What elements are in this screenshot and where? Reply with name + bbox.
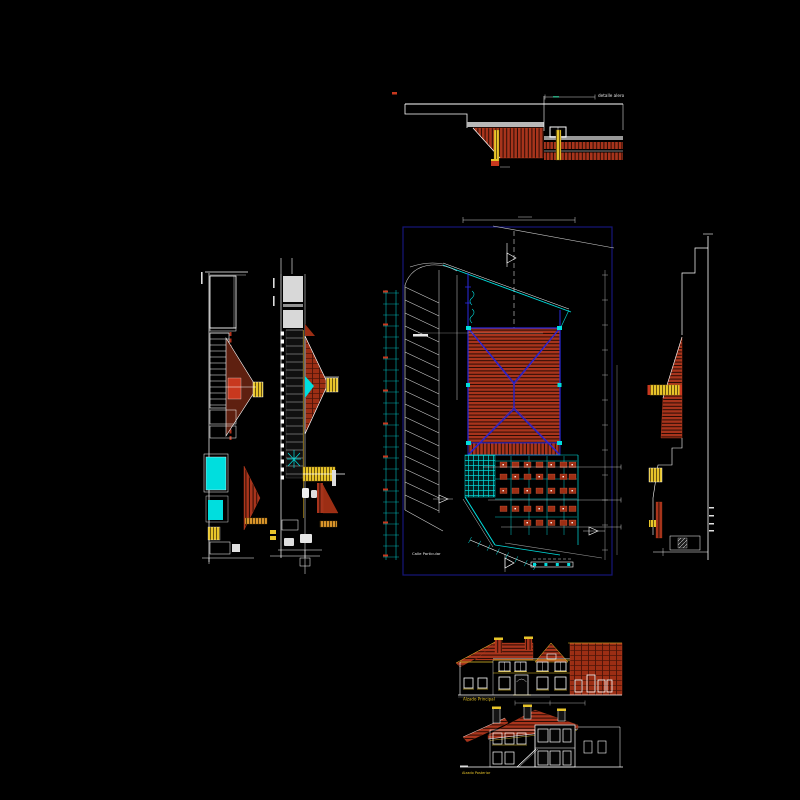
front-elevation-label: Alzado Principal <box>463 697 495 702</box>
road-dim-line <box>470 540 535 567</box>
road-edge <box>505 543 602 558</box>
site-roof-plan[interactable]: Calle Particular <box>383 217 621 575</box>
cad-drawing-sheet: detalle alero <box>0 0 800 800</box>
red-tick-mark <box>392 92 397 95</box>
vertical-label-marks <box>273 278 275 288</box>
room-fill <box>206 457 226 490</box>
fixture <box>311 490 317 498</box>
boundary-extension-line <box>493 226 614 248</box>
scale-bar <box>531 559 573 567</box>
floor-plan-furniture <box>500 462 576 526</box>
driveway-curve <box>405 265 457 285</box>
eave-detail-section[interactable]: detalle alero <box>392 92 625 167</box>
entry-door <box>515 675 528 695</box>
building-section-a[interactable] <box>201 272 267 564</box>
parking-stalls <box>405 287 439 511</box>
eave-detail-label: detalle alero <box>598 93 625 98</box>
roof-eave-band <box>468 443 560 455</box>
wall-band <box>283 276 303 302</box>
vertical-label-marks <box>201 272 203 284</box>
break-symbol <box>470 291 474 305</box>
level-label-marks <box>709 507 714 532</box>
chimney <box>495 638 502 653</box>
left-dimension-strings <box>383 290 399 560</box>
front-elevation[interactable]: Alzado Principal <box>456 637 622 706</box>
brick-wing <box>570 643 622 695</box>
north-flag-marker <box>507 253 516 263</box>
main-block <box>535 725 575 767</box>
tile-hatch-slope <box>473 128 543 158</box>
rear-elevation-label: Alzado Posterior <box>462 771 491 775</box>
rear-elevation[interactable]: Alzado Posterior <box>460 705 623 776</box>
terrace-grid <box>465 455 495 497</box>
green-dim-tick <box>553 96 559 98</box>
chimney-hatch <box>326 378 338 392</box>
roof-board-layer <box>467 122 544 127</box>
room-fill <box>208 500 223 520</box>
chimney-band <box>650 385 680 395</box>
road-arrow-marker <box>505 558 514 568</box>
fixture <box>302 488 309 498</box>
stair-line <box>517 749 536 767</box>
chimney-hatch <box>253 382 263 397</box>
side-elevation-right[interactable] <box>648 234 715 560</box>
plan-boundary-diagonal <box>465 497 495 545</box>
street-label: Calle Particular <box>412 551 441 556</box>
building-section-b[interactable] <box>270 258 345 574</box>
plot-boundary <box>443 265 571 312</box>
timber-post <box>556 130 561 160</box>
cad-model-space[interactable]: detalle alero <box>0 0 800 800</box>
stepped-profile <box>682 248 708 335</box>
parking-label-mark <box>413 334 428 337</box>
window-row-upper <box>498 662 567 672</box>
